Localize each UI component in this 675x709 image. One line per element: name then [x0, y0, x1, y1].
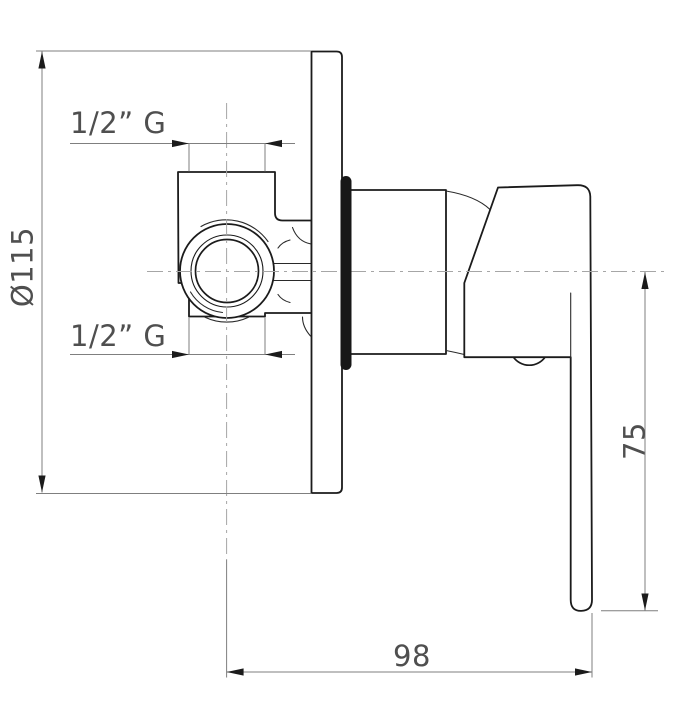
arrow-down-icon [641, 594, 648, 611]
dim-inlet-top-lines [70, 144, 295, 172]
arrow-right-icon [575, 668, 592, 675]
arrow-up-icon [38, 52, 45, 69]
arrow-left-icon [265, 351, 282, 358]
dim-depth: 98 [227, 560, 592, 678]
arrow-down-icon [38, 476, 45, 493]
wall-plate [312, 52, 343, 494]
dim-label-inlet-top: 1/2” G [70, 106, 166, 140]
drawing-canvas: Ø115 1/2” G 1/2” G 75 98 [0, 0, 675, 709]
valve-body [178, 172, 312, 336]
arrow-right-icon [172, 351, 189, 358]
dim-inlet-bottom: 1/2” G [70, 317, 295, 358]
arrow-left-icon [265, 140, 282, 147]
shower-mixer-technical-drawing: Ø115 1/2” G 1/2” G 75 98 [0, 0, 675, 709]
dim-label-plate-diameter: Ø115 [6, 227, 40, 307]
dim-inlet-top: 1/2” G [70, 106, 295, 172]
handle-screw-bump [514, 357, 546, 365]
arrow-up-icon [641, 272, 648, 289]
dim-label-depth: 98 [393, 639, 431, 673]
dim-label-inlet-bottom: 1/2” G [70, 319, 166, 353]
mounting-gasket [341, 176, 352, 370]
arrow-right-icon [172, 140, 189, 147]
dim-label-lever-length: 75 [618, 422, 652, 460]
dim-lever-length: 75 [601, 272, 658, 611]
handle-body [464, 185, 592, 611]
arrow-left-icon [227, 668, 244, 675]
